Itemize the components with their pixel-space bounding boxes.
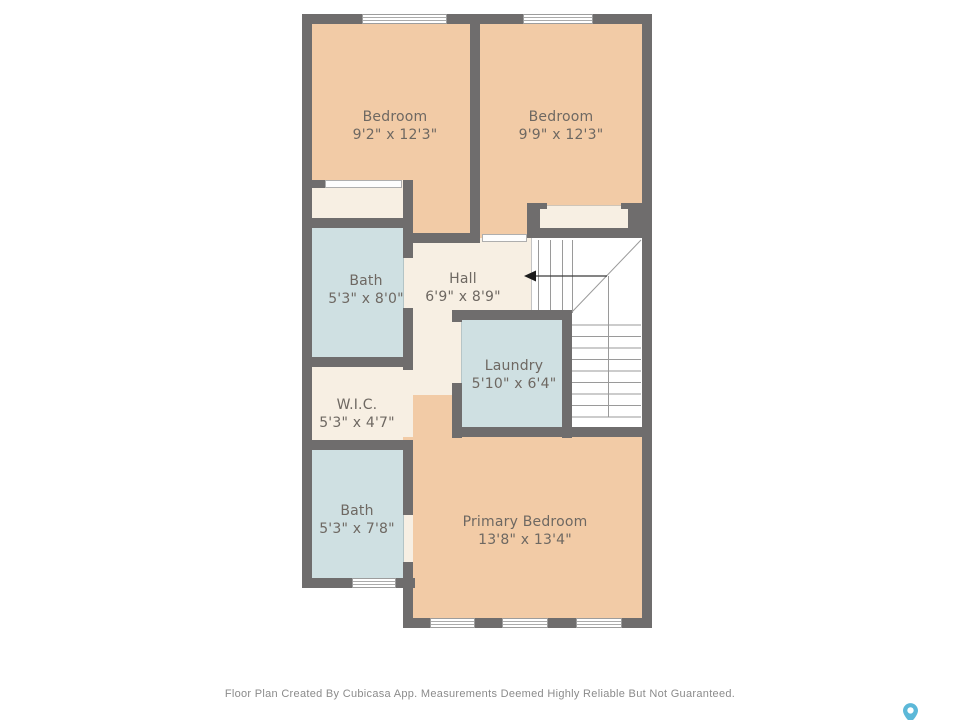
room-dims: 9'9" x 12'3"	[519, 126, 604, 144]
floor-plan-canvas: Bedroom 9'2" x 12'3" Bedroom 9'9" x 12'3…	[0, 0, 960, 720]
room-dims: 6'9" x 8'9"	[425, 288, 501, 306]
window-symbol	[352, 578, 396, 588]
room-fill-primary-corridor	[413, 395, 452, 440]
room-dims: 5'3" x 4'7"	[319, 414, 395, 432]
room-name: W.I.C.	[337, 397, 378, 413]
room-name: Primary Bedroom	[463, 514, 588, 530]
wall-segment	[470, 24, 480, 243]
door-gap-fill	[403, 515, 413, 562]
opening-line	[403, 515, 404, 562]
room-name: Laundry	[485, 358, 543, 374]
wall-segment	[302, 14, 312, 588]
wall-segment	[621, 203, 628, 209]
wall-segment	[452, 427, 642, 437]
room-name: Bath	[340, 503, 373, 519]
wall-segment	[562, 310, 572, 438]
door-opening	[482, 234, 527, 242]
window-symbol	[430, 618, 475, 628]
window-symbol	[523, 14, 593, 24]
wall-segment	[403, 562, 413, 588]
room-label-bath-1: Bath 5'3" x 8'0"	[328, 272, 404, 308]
wall-segment	[452, 310, 462, 322]
wall-segment	[540, 203, 547, 209]
wall-segment	[413, 233, 480, 243]
window-symbol	[362, 14, 447, 24]
room-label-primary-bedroom: Primary Bedroom 13'8" x 13'4"	[463, 513, 588, 549]
wall-segment	[310, 180, 325, 188]
room-dims: 5'10" x 6'4"	[472, 375, 557, 393]
wall-segment	[302, 357, 413, 367]
window-symbol	[502, 618, 548, 628]
room-label-laundry: Laundry 5'10" x 6'4"	[472, 357, 557, 393]
room-name: Bath	[349, 273, 382, 289]
room-label-wic: W.I.C. 5'3" x 4'7"	[319, 396, 395, 432]
room-label-bath-2: Bath 5'3" x 7'8"	[319, 502, 395, 538]
door-opening	[325, 180, 402, 188]
wall-segment	[302, 14, 652, 24]
room-name: Bedroom	[529, 109, 594, 125]
room-label-bedroom-2: Bedroom 9'9" x 12'3"	[519, 108, 604, 144]
room-dims: 9'2" x 12'3"	[353, 126, 438, 144]
wall-segment	[642, 14, 652, 628]
staircase-area-lower	[572, 313, 642, 426]
wall-segment	[452, 310, 572, 320]
door-gap-fill	[403, 395, 413, 442]
opening-line	[461, 322, 462, 383]
window-symbol	[576, 618, 622, 628]
wall-segment	[302, 218, 413, 228]
map-pin-logo-icon	[903, 703, 918, 720]
staircase-area-upper	[531, 238, 642, 320]
room-dims: 5'3" x 7'8"	[319, 520, 395, 538]
room-label-hall: Hall 6'9" x 8'9"	[425, 270, 501, 306]
room-label-bedroom-1: Bedroom 9'2" x 12'3"	[353, 108, 438, 144]
room-dims: 13'8" x 13'4"	[463, 531, 588, 549]
wall-segment	[302, 440, 413, 450]
disclaimer-text: Floor Plan Created By Cubicasa App. Meas…	[0, 688, 960, 700]
room-name: Hall	[449, 271, 477, 287]
room-fill-closet-nook	[540, 205, 628, 228]
room-name: Bedroom	[363, 109, 428, 125]
opening-line	[547, 205, 621, 206]
wall-segment	[527, 228, 642, 238]
room-dims: 5'3" x 8'0"	[328, 290, 404, 308]
wall-segment	[403, 440, 413, 515]
